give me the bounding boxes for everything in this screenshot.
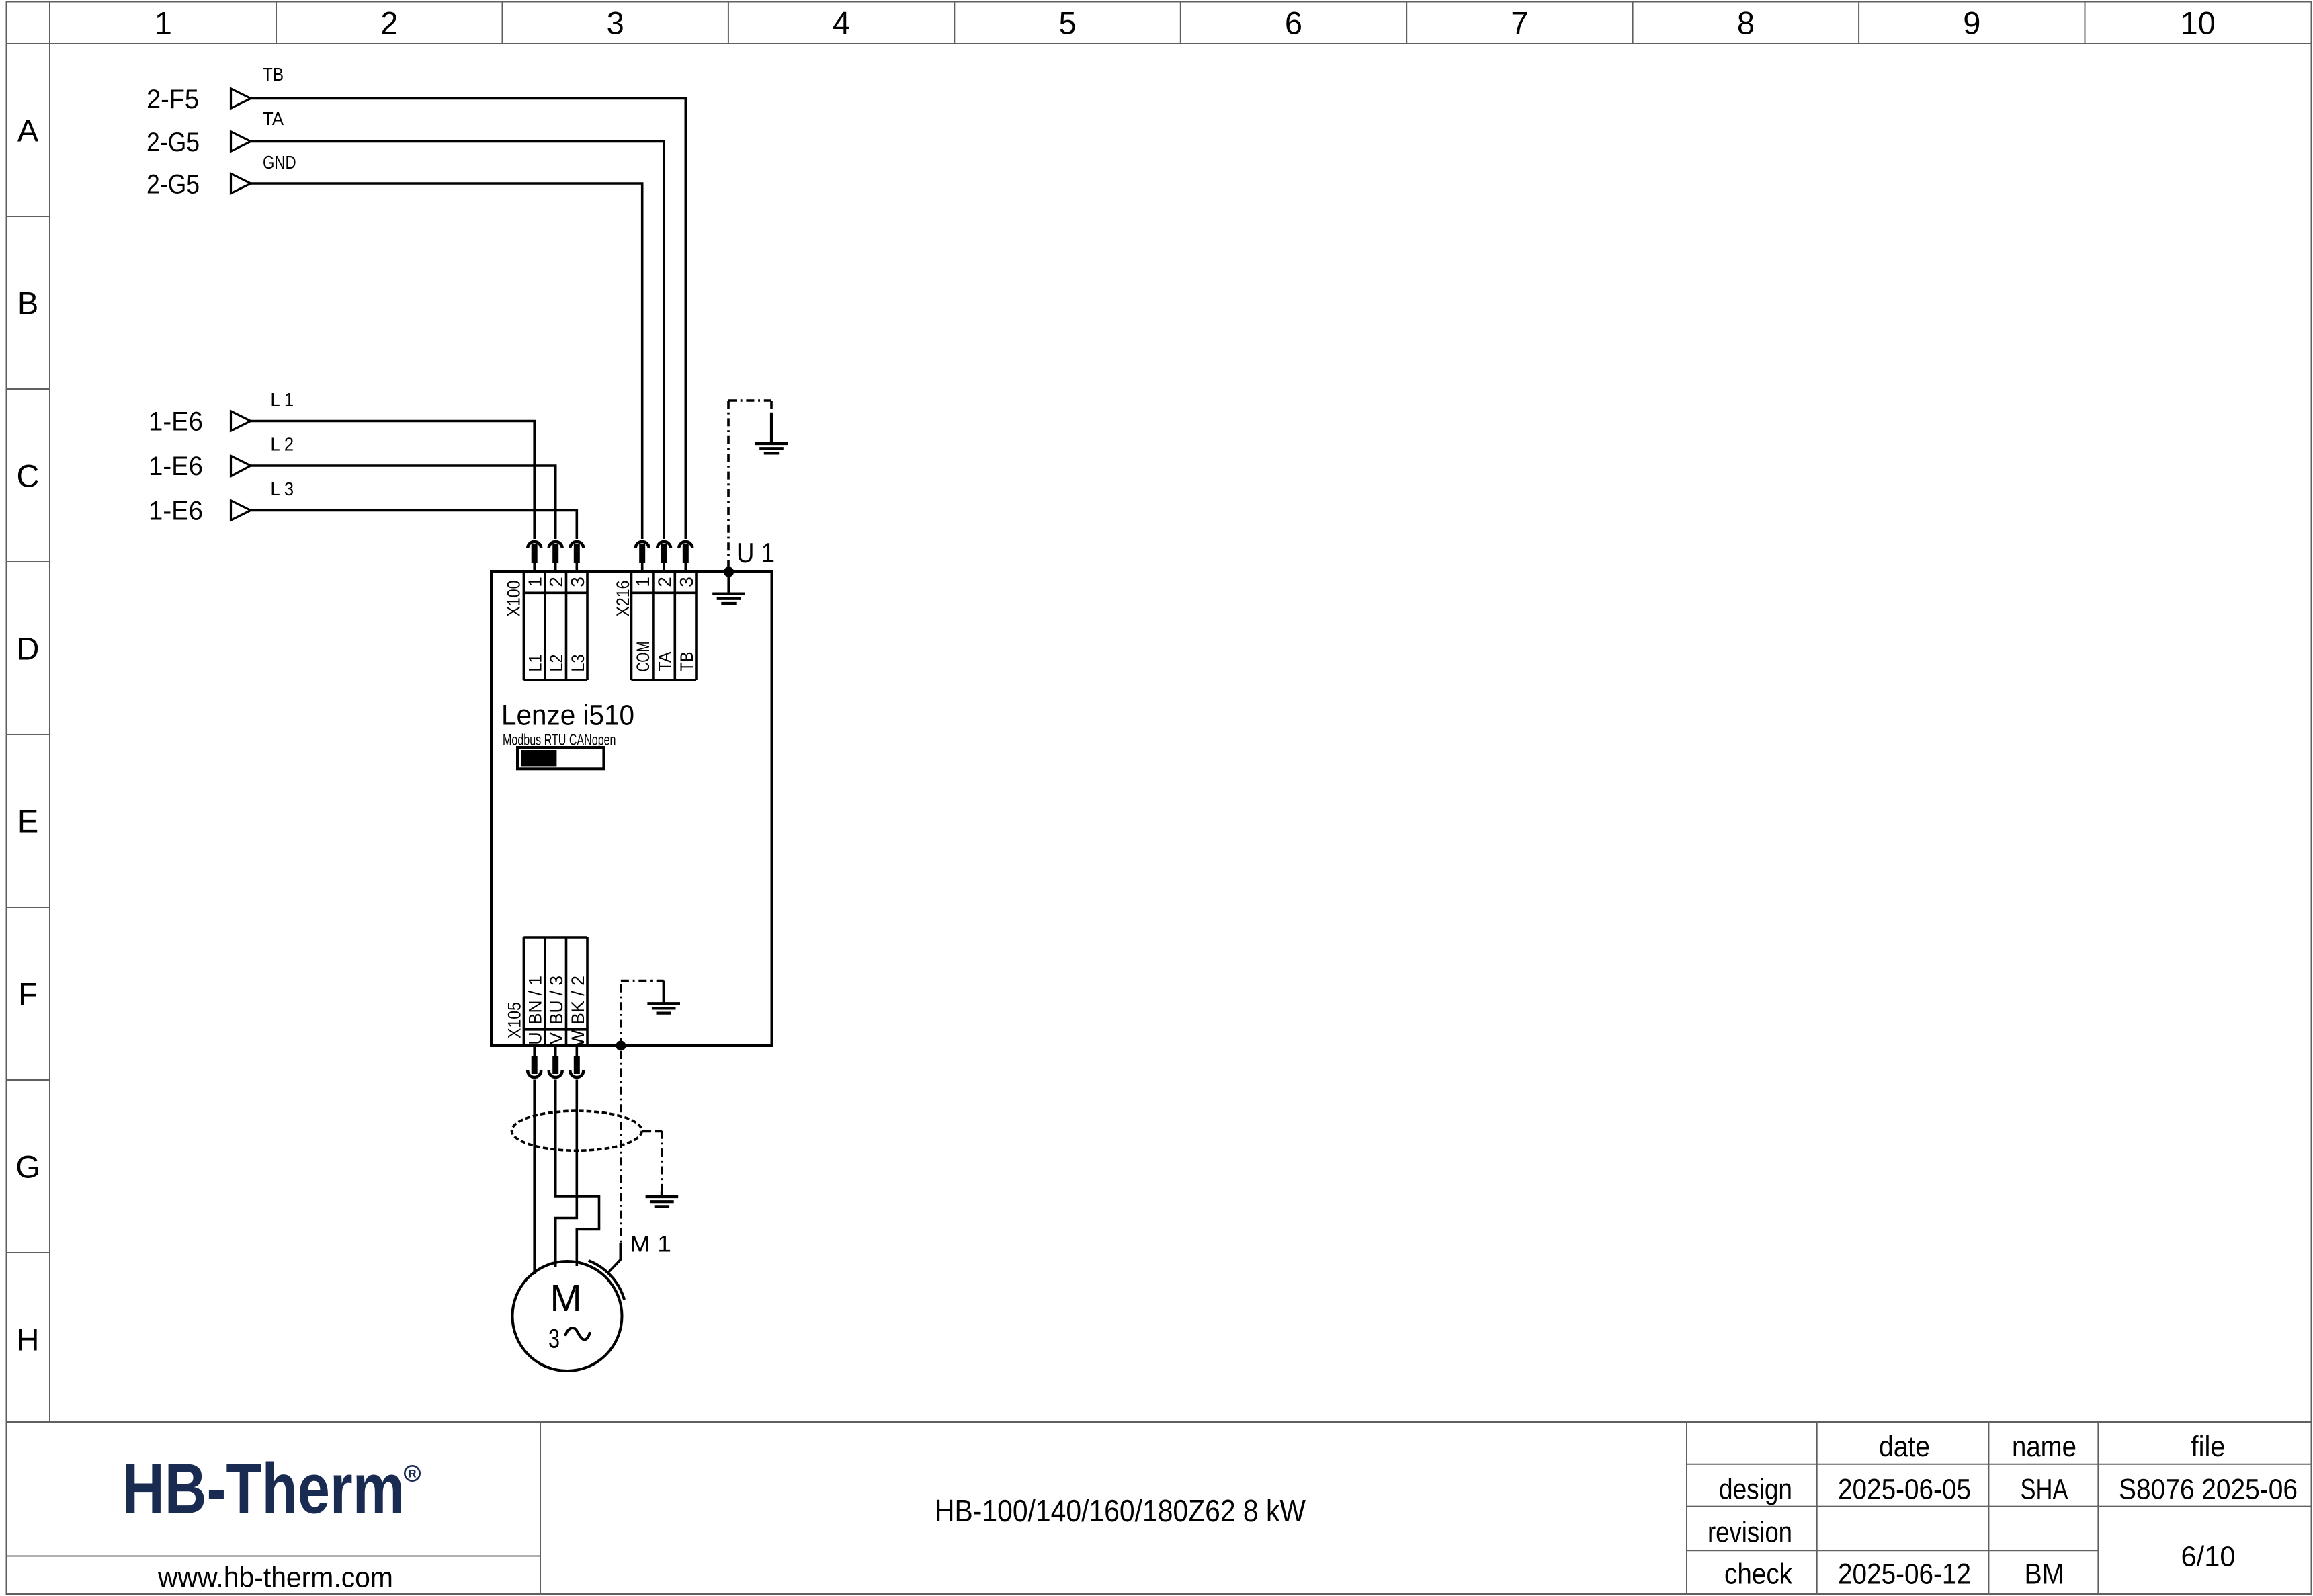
svg-text:X216: X216 (613, 581, 633, 617)
svg-text:TB: TB (263, 64, 284, 85)
svg-text:1-E6: 1-E6 (149, 452, 203, 481)
svg-text:L1: L1 (525, 655, 546, 672)
svg-text:X105: X105 (505, 1002, 525, 1038)
svg-text:3: 3 (607, 5, 624, 41)
svg-text:G: G (15, 1149, 40, 1185)
svg-text:8: 8 (1737, 5, 1755, 41)
svg-text:TA: TA (263, 108, 284, 129)
svg-text:COM: COM (633, 642, 653, 672)
svg-text:check: check (1724, 1558, 1792, 1591)
svg-text:TA: TA (655, 652, 675, 672)
svg-text:B: B (17, 286, 38, 321)
svg-text:S8076 2025-06: S8076 2025-06 (2119, 1474, 2298, 1506)
svg-text:date: date (1879, 1431, 1930, 1463)
svg-text:6/10: 6/10 (2181, 1540, 2236, 1572)
svg-text:BN / 1: BN / 1 (525, 976, 546, 1025)
svg-text:BK / 2: BK / 2 (568, 976, 588, 1025)
svg-text:design: design (1719, 1474, 1792, 1506)
svg-text:1: 1 (632, 577, 653, 587)
svg-text:2025-06-05: 2025-06-05 (1838, 1474, 1971, 1506)
svg-text:V: V (546, 1032, 566, 1044)
svg-text:BM: BM (2025, 1558, 2064, 1591)
svg-text:Lenze i510: Lenze i510 (501, 700, 634, 732)
svg-text:2025-06-12: 2025-06-12 (1838, 1558, 1971, 1591)
svg-text:3: 3 (548, 1325, 560, 1354)
svg-text:2: 2 (655, 577, 675, 587)
svg-text:L 2: L 2 (271, 434, 294, 455)
svg-text:L3: L3 (568, 655, 588, 672)
svg-text:2-F5: 2-F5 (146, 85, 199, 114)
svg-text:L 3: L 3 (271, 478, 294, 499)
svg-text:C: C (17, 458, 40, 494)
svg-text:1: 1 (525, 577, 546, 587)
svg-text:5: 5 (1059, 5, 1077, 41)
svg-text:W: W (568, 1030, 588, 1047)
svg-text:M 1: M 1 (630, 1232, 671, 1257)
svg-text:10: 10 (2181, 5, 2216, 41)
svg-text:file: file (2191, 1431, 2226, 1463)
svg-text:2: 2 (380, 5, 398, 41)
svg-text:U 1: U 1 (737, 537, 775, 569)
svg-text:1: 1 (155, 5, 172, 41)
svg-text:6: 6 (1285, 5, 1302, 41)
svg-text:L 1: L 1 (271, 389, 294, 410)
svg-text:M: M (550, 1277, 582, 1319)
svg-text:1-E6: 1-E6 (149, 497, 203, 526)
svg-text:A: A (17, 113, 39, 149)
svg-text:E: E (17, 804, 38, 839)
svg-text:7: 7 (1511, 5, 1528, 41)
svg-text:SHA: SHA (2021, 1474, 2068, 1506)
svg-text:9: 9 (1963, 5, 1980, 41)
svg-text:GND: GND (263, 152, 296, 173)
svg-text:X100: X100 (504, 581, 524, 617)
svg-text:2-G5: 2-G5 (146, 170, 200, 200)
svg-text:3: 3 (567, 577, 588, 587)
svg-text:H: H (17, 1322, 40, 1357)
svg-text:HB-Therm: HB-Therm (122, 1450, 405, 1529)
svg-text:1-E6: 1-E6 (149, 407, 203, 437)
svg-text:2-G5: 2-G5 (146, 128, 200, 157)
svg-text:Modbus RTU CANopen: Modbus RTU CANopen (503, 731, 616, 749)
svg-text:name: name (2012, 1431, 2076, 1463)
svg-text:2: 2 (546, 577, 566, 587)
svg-text:3: 3 (676, 577, 697, 587)
svg-text:R: R (408, 1468, 416, 1480)
svg-text:BU / 3: BU / 3 (546, 976, 566, 1025)
svg-text:U: U (525, 1032, 546, 1045)
svg-text:HB-100/140/160/180Z62 8 kW: HB-100/140/160/180Z62 8 kW (935, 1493, 1306, 1528)
svg-text:4: 4 (833, 5, 850, 41)
svg-text:revision: revision (1708, 1517, 1792, 1549)
svg-text:D: D (17, 631, 40, 667)
svg-text:F: F (18, 976, 38, 1012)
svg-text:TB: TB (677, 652, 697, 672)
svg-text:L2: L2 (546, 655, 566, 672)
svg-text:www.hb-therm.com: www.hb-therm.com (157, 1562, 393, 1593)
